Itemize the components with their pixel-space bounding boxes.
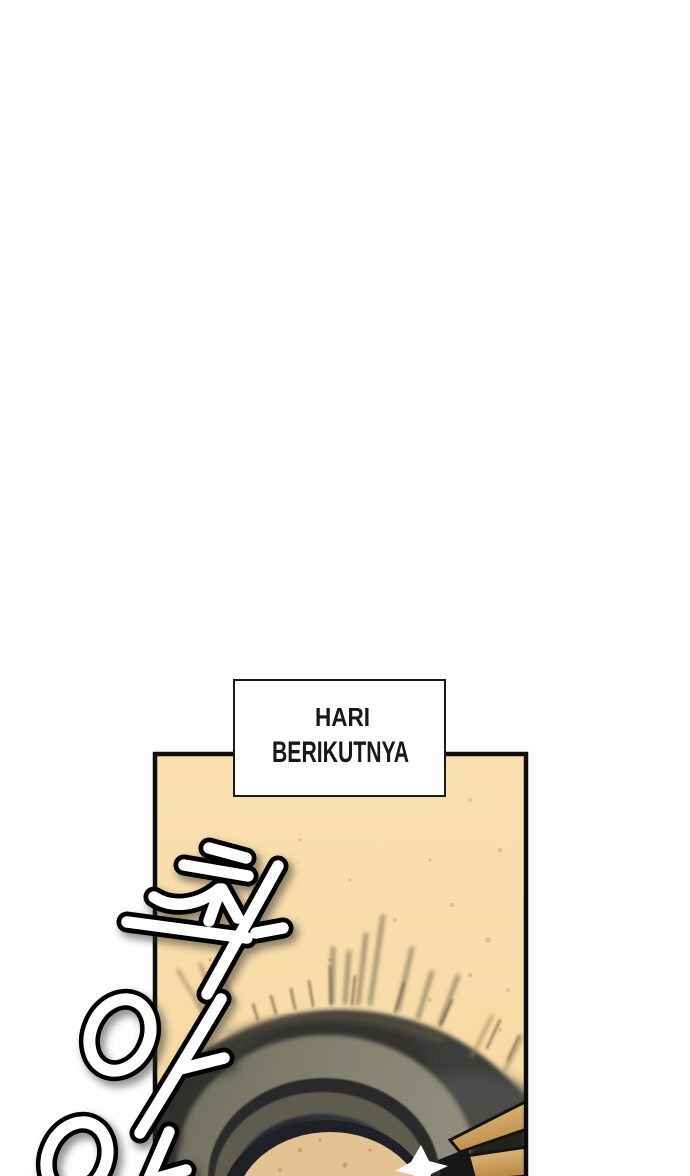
svg-text:BERIKUTNYA: BERIKUTNYA [272,736,409,769]
svg-text:HARI: HARI [315,702,370,732]
